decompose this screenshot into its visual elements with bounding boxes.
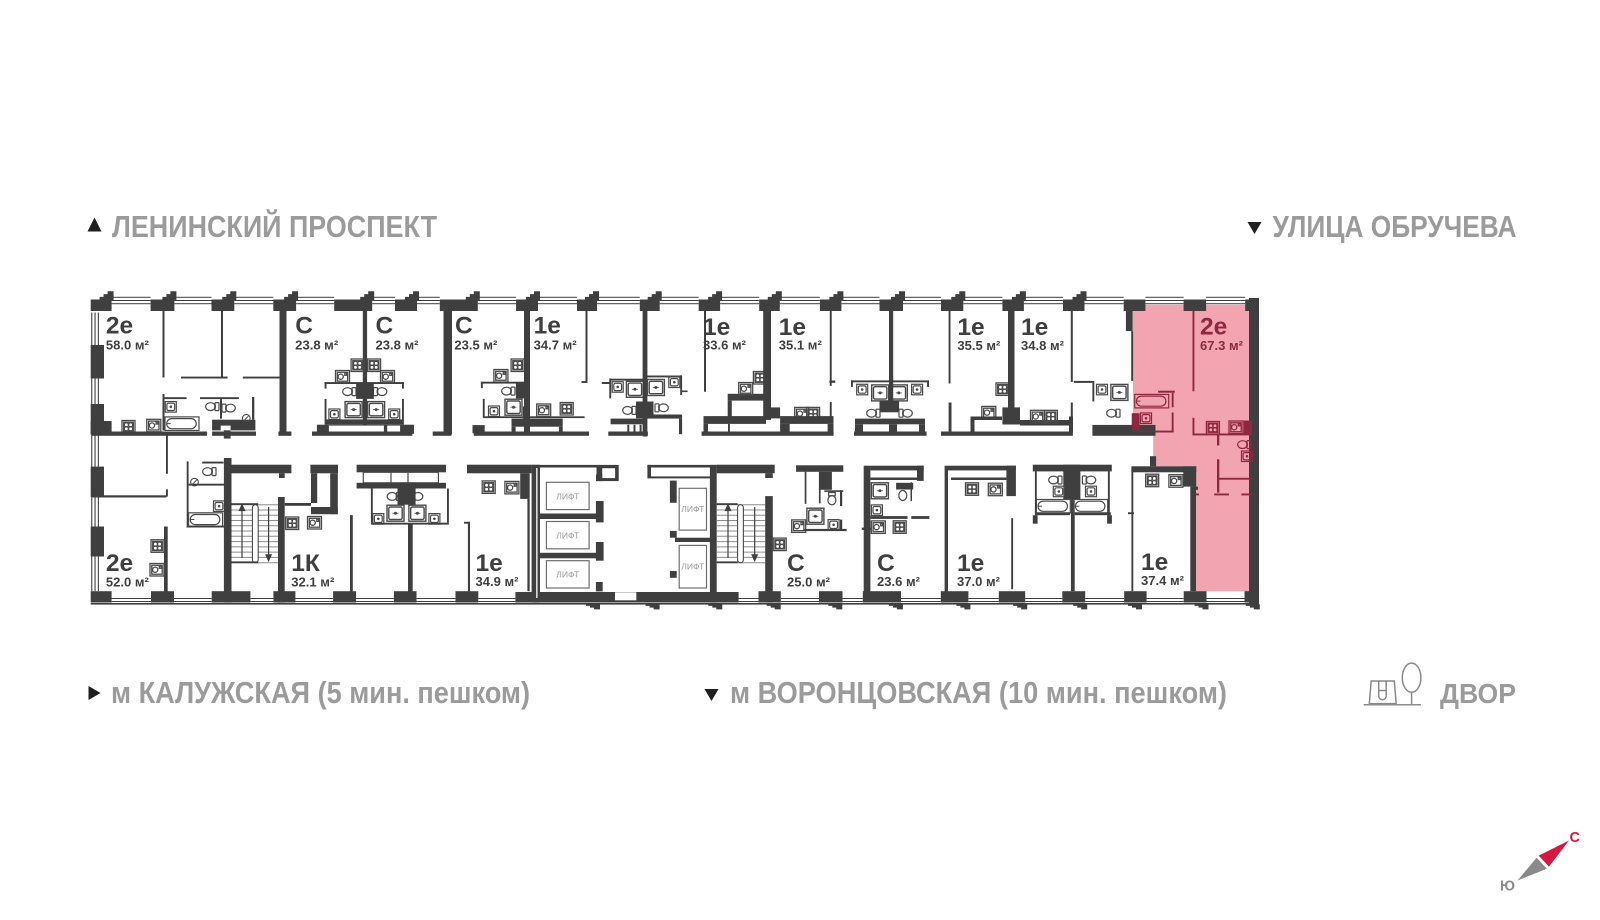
svg-text:23.5 м²: 23.5 м² [454,337,497,352]
svg-text:1е: 1е [534,313,561,340]
svg-text:ЛИФТ: ЛИФТ [681,563,704,572]
svg-text:37.0 м²: 37.0 м² [957,574,1000,589]
svg-text:С: С [295,313,313,340]
svg-text:25.0 м²: 25.0 м² [787,575,830,590]
svg-text:ЛИФТ: ЛИФТ [556,571,579,580]
svg-text:2е: 2е [106,550,133,577]
svg-text:2е: 2е [106,313,133,340]
svg-text:37.4 м²: 37.4 м² [1141,573,1184,588]
svg-text:23.8 м²: 23.8 м² [295,337,338,352]
svg-text:С: С [1570,830,1581,846]
svg-text:С: С [455,313,473,340]
svg-text:34.8 м²: 34.8 м² [1021,338,1064,353]
svg-text:С: С [376,313,394,340]
svg-text:ЛЕНИНСКИЙ ПРОСПЕКТ: ЛЕНИНСКИЙ ПРОСПЕКТ [112,208,437,244]
svg-text:52.0 м²: 52.0 м² [106,575,149,590]
svg-text:м КАЛУЖСКАЯ (5 мин. пешком): м КАЛУЖСКАЯ (5 мин. пешком) [111,676,530,710]
svg-text:32.1 м²: 32.1 м² [291,575,334,590]
svg-text:33.6 м²: 33.6 м² [703,338,746,353]
svg-text:1К: 1К [291,550,320,577]
svg-text:ЛИФТ: ЛИФТ [681,505,704,514]
svg-text:Ю: Ю [1500,879,1515,895]
svg-text:2е: 2е [1200,314,1227,341]
svg-text:67.3 м²: 67.3 м² [1200,338,1243,353]
svg-text:С: С [787,550,805,577]
svg-text:ЛИФТ: ЛИФТ [556,492,579,501]
svg-text:УЛИЦА ОБРУЧЕВА: УЛИЦА ОБРУЧЕВА [1273,210,1517,244]
svg-text:58.0 м²: 58.0 м² [106,337,149,352]
svg-text:23.6 м²: 23.6 м² [877,574,920,589]
svg-text:23.8 м²: 23.8 м² [376,337,419,352]
svg-text:ЛИФТ: ЛИФТ [556,532,579,541]
svg-text:34.9 м²: 34.9 м² [476,574,519,589]
svg-text:35.5 м²: 35.5 м² [957,338,1000,353]
svg-text:м ВОРОНЦОВСКАЯ (10 мин. пешко: м ВОРОНЦОВСКАЯ (10 мин. пешком) [730,676,1227,710]
svg-text:35.1 м²: 35.1 м² [779,338,822,353]
svg-text:34.7 м²: 34.7 м² [534,337,577,352]
svg-text:ДВОР: ДВОР [1440,678,1516,709]
